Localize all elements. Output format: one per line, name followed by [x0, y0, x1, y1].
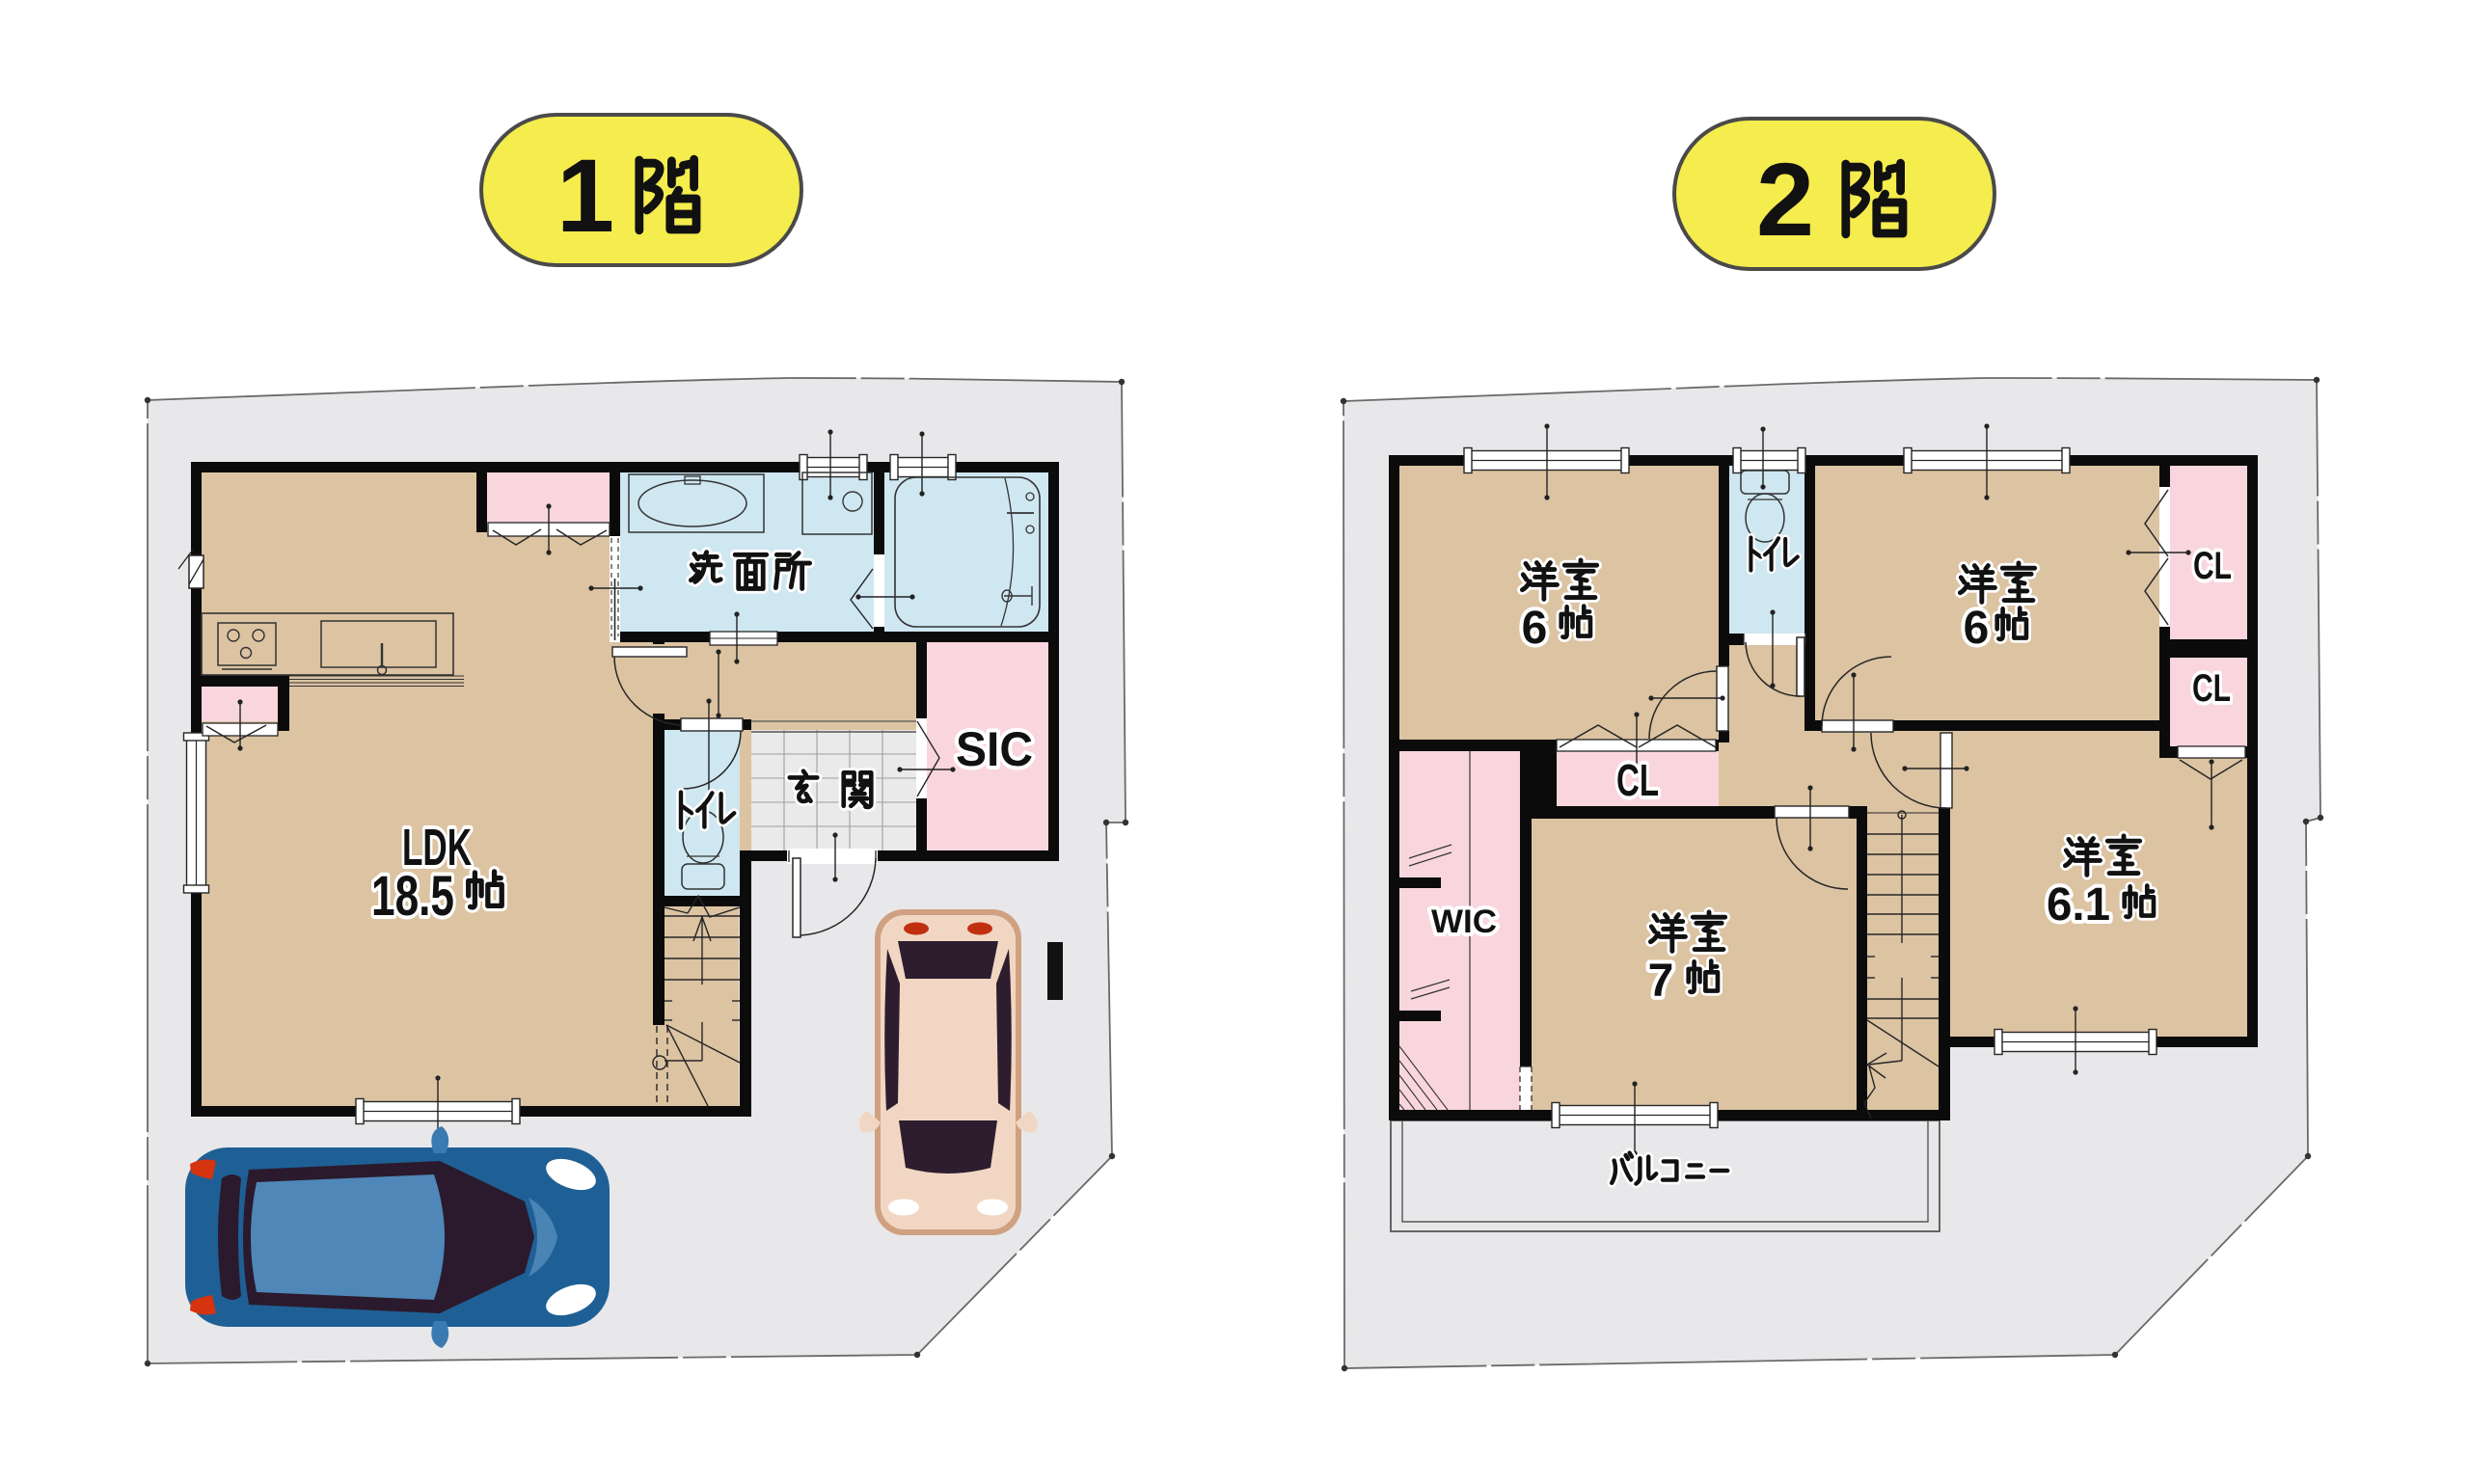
svg-text:SIC: SIC	[956, 722, 1033, 776]
svg-text:6.1: 6.1	[2047, 879, 2110, 931]
svg-text:18.5: 18.5	[371, 865, 454, 928]
svg-text:6: 6	[1522, 603, 1548, 654]
svg-text:2: 2	[1756, 141, 1814, 257]
svg-text:WIC: WIC	[1431, 904, 1497, 940]
svg-text:CL: CL	[2193, 545, 2232, 587]
svg-text:CL: CL	[1616, 755, 1659, 805]
svg-text:6: 6	[1964, 603, 1990, 654]
svg-text:CL: CL	[2192, 667, 2231, 710]
svg-text:7: 7	[1648, 956, 1674, 1007]
svg-text:1: 1	[556, 137, 614, 254]
